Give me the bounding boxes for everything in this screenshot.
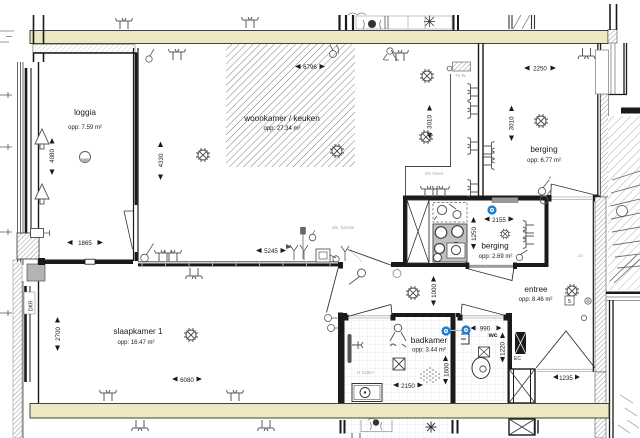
svg-text:6080: 6080 — [180, 377, 194, 384]
svg-text:2250: 2250 — [533, 66, 547, 73]
svg-text:1235: 1235 — [559, 375, 573, 382]
svg-text:badkamer: badkamer — [411, 336, 448, 345]
svg-text:4080: 4080 — [49, 149, 56, 163]
svg-text:4330: 4330 — [158, 153, 165, 167]
svg-text:H 2400+: H 2400+ — [357, 370, 375, 375]
svg-text:opp: 7.59 m²: opp: 7.59 m² — [68, 125, 102, 131]
svg-text:1865: 1865 — [78, 240, 92, 247]
svg-text:opp: 2.69 m²: opp: 2.69 m² — [479, 254, 513, 260]
svg-text:DKR: DKR — [29, 300, 35, 311]
svg-text:berging: berging — [481, 242, 509, 251]
svg-text:5: 5 — [568, 299, 571, 305]
svg-text:EC: EC — [514, 356, 521, 362]
svg-text:wc: wc — [487, 332, 497, 339]
svg-text:opp: 6.77 m²: opp: 6.77 m² — [527, 158, 561, 164]
svg-text:opp: 16.47 m²: opp: 16.47 m² — [117, 340, 154, 346]
svg-text:opp: 3.44 m²: opp: 3.44 m² — [412, 348, 446, 354]
svg-text:990: 990 — [480, 326, 491, 333]
svg-text:3010: 3010 — [427, 115, 434, 129]
svg-text:entree: entree — [524, 285, 548, 294]
svg-text:1220: 1220 — [500, 342, 507, 356]
svg-text:woonkamer / keuken: woonkamer / keuken — [243, 114, 320, 123]
svg-text:6796: 6796 — [303, 64, 317, 71]
svg-text:opp: 27.34 m²: opp: 27.34 m² — [263, 126, 300, 132]
svg-text:1600: 1600 — [444, 363, 451, 377]
svg-text:2150: 2150 — [401, 383, 415, 390]
svg-text:afz. functie: afz. functie — [332, 225, 355, 230]
svg-text:slaapkamer 1: slaapkamer 1 — [113, 327, 163, 336]
svg-text:76 W: 76 W — [455, 73, 466, 78]
svg-text:1250: 1250 — [471, 227, 478, 241]
svg-text:2x: 2x — [578, 253, 584, 258]
svg-text:5245: 5245 — [264, 248, 278, 255]
svg-text:1000: 1000 — [431, 284, 438, 298]
svg-text:KK Oven: KK Oven — [425, 171, 444, 176]
svg-text:berging: berging — [530, 145, 558, 154]
svg-text:2155: 2155 — [492, 217, 506, 224]
svg-text:2700: 2700 — [55, 327, 62, 341]
svg-text:loggia: loggia — [74, 108, 96, 117]
svg-text:opp: 8.46 m²: opp: 8.46 m² — [519, 297, 553, 303]
svg-text:3010: 3010 — [509, 116, 516, 130]
